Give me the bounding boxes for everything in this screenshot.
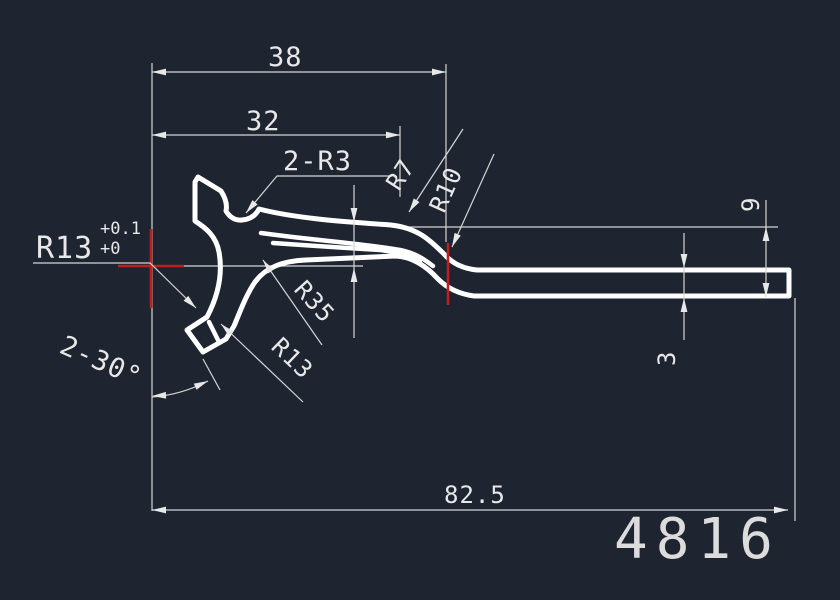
dim-text-32: 32 [246,106,281,137]
note-text-chamfer: 2-30° [55,330,146,393]
leader-r10 [452,154,494,247]
dim-text-r35: R35 [289,275,341,328]
cad-drawing: 38 32 2-R3 82.5 9 3 R13 +0.1 +0 R7 R10 R… [0,0,840,600]
chamfer-extension-line [203,359,220,390]
leader-2r3 [246,176,392,213]
dim-text-tol-lower: +0 [100,239,120,259]
leader-r13-tol [33,263,196,308]
dim-text-9: 9 [737,197,765,212]
part-number: 4816 [614,507,781,572]
part-geometry [187,177,789,352]
dimension-lines [33,72,788,510]
dim-text-tol-upper: +0.1 [100,219,141,239]
dim-text-38: 38 [268,42,303,73]
dimension-texts: 38 32 2-R3 82.5 9 3 R13 +0.1 +0 R7 R10 R… [36,42,781,572]
dim-text-r13-tol: R13 [36,231,93,266]
dim-text-r7: R7 [381,154,421,195]
dim-text-82-5: 82.5 [444,481,506,509]
dim-text-r13-lower: R13 [266,332,319,384]
note-text-2r3: 2-R3 [283,146,352,177]
dim-text-r10: R10 [424,163,468,217]
dim-text-3: 3 [653,351,681,366]
cad-canvas[interactable]: 38 32 2-R3 82.5 9 3 R13 +0.1 +0 R7 R10 R… [0,0,840,600]
prong-chamfer-mark [209,322,219,342]
part-outline [187,177,789,352]
center-marks [118,229,448,308]
